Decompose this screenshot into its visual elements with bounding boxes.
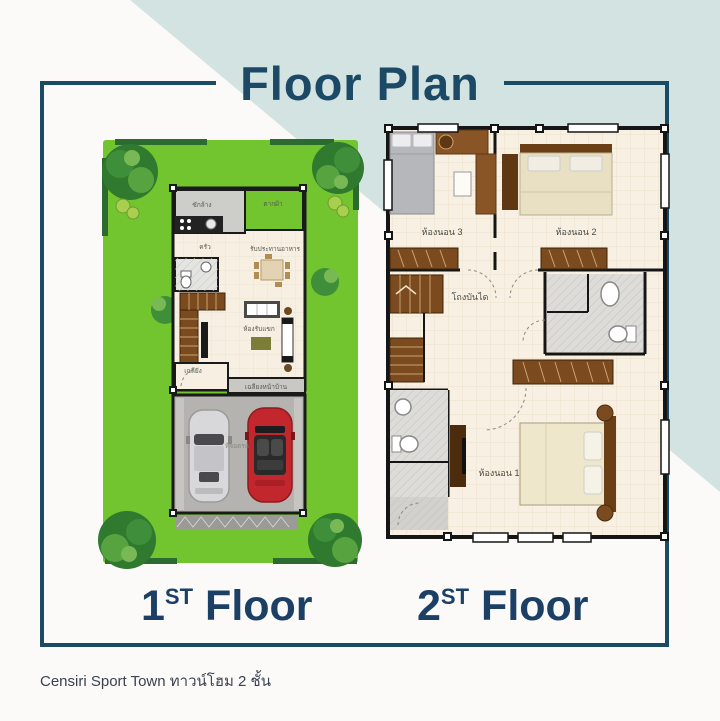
frame-left-border (40, 81, 44, 647)
bed-3 (390, 132, 434, 214)
side-table (284, 364, 292, 372)
balcony (390, 497, 448, 530)
tree-bottom-right (308, 513, 362, 567)
garage-strip (176, 398, 184, 510)
page-title: Floor Plan (0, 56, 720, 111)
mirror-stool (439, 135, 453, 149)
floor-number: 2 (417, 582, 441, 630)
floor-ordinal: ST (441, 584, 469, 609)
room-label-bedroom3: ห้องนอน 3 (422, 227, 463, 237)
desk (454, 172, 471, 196)
tree-top-right (312, 142, 364, 194)
tv-console (201, 322, 208, 358)
drying-yard (245, 190, 303, 230)
floor-number: 1 (141, 582, 165, 630)
floor-word: Floor (205, 582, 312, 630)
tv-bed1 (462, 438, 466, 474)
wardrobe-bed2 (502, 154, 518, 210)
nightstand-lamp (597, 405, 613, 421)
room-label-kitchen: ครัว (199, 243, 211, 251)
tree-top-left (102, 144, 158, 200)
tree-bottom-left (98, 511, 156, 569)
floorplan-poster: Floor Plan (0, 0, 720, 721)
room-label-entry: เฉลียง (184, 367, 202, 375)
bathroom-2f (547, 274, 643, 352)
wardrobe-bed3 (476, 154, 496, 214)
side-sofa (282, 318, 293, 362)
first-floor-plan: ซักล้าง ตากผ้า ครัว รับประทานอาหาร ห้องร… (85, 130, 375, 580)
room-label-bedroom1: ห้องนอน 1 (479, 468, 520, 478)
room-label-dining: รับประทานอาหาร (250, 245, 301, 253)
bed-2 (520, 144, 612, 215)
room-label-stair-hall: โถงบันได (452, 292, 489, 302)
room-label-living: ห้องรับแขก (243, 325, 275, 333)
red-car (245, 408, 295, 502)
room-label-drying: ตากผ้า (263, 200, 283, 208)
closet-bed2 (541, 248, 607, 269)
bathroom-1f (175, 258, 218, 291)
floor-word: Floor (481, 582, 588, 630)
second-floor-label: 2STFloor (417, 582, 589, 631)
closet-bed3 (390, 248, 458, 269)
floor-ordinal: ST (165, 584, 193, 609)
hall-wardrobe (513, 360, 613, 384)
small-tree-right (311, 268, 339, 296)
room-label-parking: ที่จอดรถ (225, 441, 249, 450)
frame-bottom-border (40, 643, 669, 647)
room-label-porch: เฉลียงหน้าบ้าน (245, 383, 288, 391)
side-table (284, 307, 292, 315)
second-floor-plan: ห้องนอน 3 ห้องนอน 2 โถงบันได ห้องนอน 1 (378, 120, 673, 565)
silver-car (186, 410, 232, 502)
first-floor-label: 1STFloor (141, 582, 313, 631)
bathroom-bed1 (390, 390, 448, 497)
rug (251, 337, 271, 350)
nightstand-lamp (597, 505, 613, 521)
project-caption: Censiri Sport Town ทาวน์โฮม 2 ชั้น (40, 669, 271, 693)
room-label-bedroom2: ห้องนอน 2 (556, 227, 597, 237)
garage-strip (294, 398, 302, 510)
kitchen-counter (175, 216, 223, 233)
room-label-laundry: ซักล้าง (192, 201, 211, 209)
